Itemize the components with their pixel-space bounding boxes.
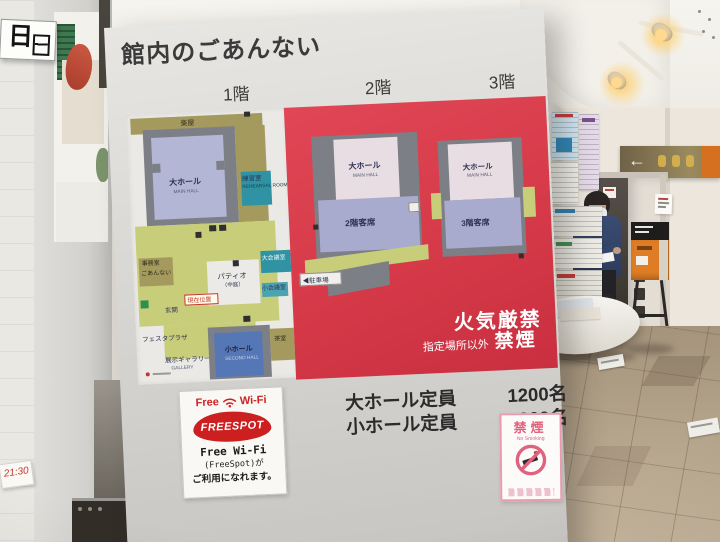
guide-board: 館内のごあんない 1階 2階 3階 楽屋 大ホール MAIN HALL 練習室 … — [104, 8, 569, 542]
map-icon-chip — [313, 224, 318, 229]
wall-paper-notice — [655, 194, 673, 215]
no-smoking-sign: 禁煙 No Smoking — [499, 413, 562, 502]
flyer — [552, 206, 602, 236]
flyer-header — [557, 274, 575, 278]
freespot-sticker: Free Wi-Fi FREESPOT Free Wi-Fi (FreeSpot… — [179, 386, 288, 499]
orange-machine — [631, 240, 669, 280]
left-arrow-icon: ← — [628, 150, 646, 171]
flyer-header — [555, 209, 575, 213]
pictogram-icon — [672, 155, 680, 167]
small-hall-label: 小ホール — [225, 346, 253, 355]
board-title: 館内のごあんない — [120, 26, 321, 70]
map-icon-chip — [233, 260, 239, 266]
gallery-label: 展示ギャラリー — [165, 356, 211, 365]
machine-label — [636, 256, 648, 265]
floor1-map: 楽屋 大ホール MAIN HALL 練習室 REHEARSAL ROOM 事務室… — [126, 108, 298, 385]
pictogram-icon — [658, 155, 666, 167]
no-smoking-title: 禁煙 — [501, 417, 559, 437]
flyer-header — [582, 118, 595, 122]
spotlight-bulb — [611, 77, 622, 88]
gallery-caption: GALLERY — [171, 365, 193, 371]
hall-notch — [152, 164, 160, 173]
flyer — [551, 162, 578, 204]
floor-tile — [641, 356, 710, 386]
room-tea — [270, 328, 295, 361]
flyer-photo — [556, 138, 572, 152]
spotlight-bulb — [655, 29, 667, 41]
no-smoking-subtitle: No Smoking — [506, 436, 555, 442]
flyer — [579, 114, 599, 190]
elevator-chip — [408, 202, 419, 212]
current-location-label: 現在位置 — [187, 294, 211, 304]
rehearsal-caption: REHEARSAL ROOM — [242, 183, 287, 190]
map-icon-chip — [209, 225, 216, 231]
info-marker — [140, 300, 148, 308]
wifi-header: Free Wi-Fi — [180, 393, 282, 410]
day-sign: 日 — [0, 19, 57, 61]
person-hand — [613, 247, 621, 254]
smoking-warning-main: 禁煙 — [494, 325, 537, 354]
parking-label: ◀駐車場 — [302, 274, 328, 285]
small-meeting-label: 小会議室 — [262, 285, 286, 293]
time-note-text: 21:30 — [3, 465, 29, 479]
f3-main-hall-label: 大ホール — [463, 163, 493, 173]
day-sign-text: 日 — [8, 23, 34, 52]
floor-label-2f: 2階 — [364, 73, 392, 99]
wifi-icon — [222, 396, 237, 408]
large-meeting-label: 大会議室 — [262, 255, 286, 263]
floor-tile — [577, 446, 652, 486]
map-icon-chip — [519, 253, 524, 258]
time-note-label: 21:30 — [0, 460, 35, 489]
main-hall-label: 大ホール — [169, 178, 201, 188]
pamphlet-pile — [560, 307, 601, 321]
entrance-label: 玄関 — [165, 307, 178, 315]
smoking-warning: 指定場所以外 禁煙 — [422, 325, 537, 357]
map-icon-chip — [219, 225, 226, 231]
legend-dot — [146, 372, 150, 376]
freespot-logo: FREESPOT — [193, 410, 272, 444]
lobby-photo: 日 21:30 ← — [0, 0, 720, 542]
f3-side-corridor — [431, 193, 442, 219]
machine-slot — [637, 246, 652, 250]
no-smoking-footer — [508, 488, 554, 496]
upper-floors-panel: 大ホール MAIN HALL 2階客席 ◀駐車場 大ホール MAIN HALL … — [284, 96, 558, 380]
window-foliage — [96, 148, 108, 182]
patio-caption: （中庭） — [222, 282, 244, 289]
calendar-grid-icon — [32, 34, 50, 56]
room-small-hall — [214, 331, 264, 377]
machine-shadow — [626, 344, 674, 354]
machine-side-panel — [659, 240, 668, 280]
flyer-header — [555, 114, 573, 117]
no-smoking-icon — [514, 443, 548, 477]
legend-text-line — [153, 372, 171, 375]
wall-specks — [694, 6, 720, 46]
window-lower-pane — [56, 182, 108, 242]
hall-notch — [216, 161, 224, 170]
floor-label-3f: 3階 — [488, 67, 516, 93]
f3-side-corridor — [523, 187, 536, 218]
flyer — [552, 112, 578, 160]
f2-seats-label: 2階客席 — [345, 218, 376, 229]
machine-display — [631, 222, 669, 240]
smoking-warning-prefix: 指定場所以外 — [422, 336, 489, 355]
floor-label-1f: 1階 — [223, 79, 251, 105]
office-info-label: ごあんない — [141, 270, 171, 278]
patio-label: パティオ — [217, 272, 247, 282]
sign-orange-end — [702, 146, 720, 178]
tea-label: 茶室 — [274, 336, 286, 343]
map-icon-chip — [195, 232, 201, 238]
freespot-logo-text: FREESPOT — [200, 419, 264, 434]
wifi-header-free: Free — [195, 396, 219, 409]
flyer — [553, 238, 602, 268]
rehearsal-label: 練習室 — [242, 175, 262, 183]
flyer-header — [556, 242, 572, 246]
office-label: 事務室 — [142, 261, 160, 268]
wifi-header-wifi: Wi-Fi — [240, 394, 267, 407]
f2-main-hall-label: 大ホール — [348, 162, 380, 172]
map-icon-chip — [243, 316, 250, 322]
pictogram-icon — [686, 155, 694, 167]
f3-seats-label: 3階客席 — [461, 219, 490, 229]
map-icon-chip — [244, 111, 250, 116]
capacity-label: 小ホール定員 — [346, 408, 475, 440]
